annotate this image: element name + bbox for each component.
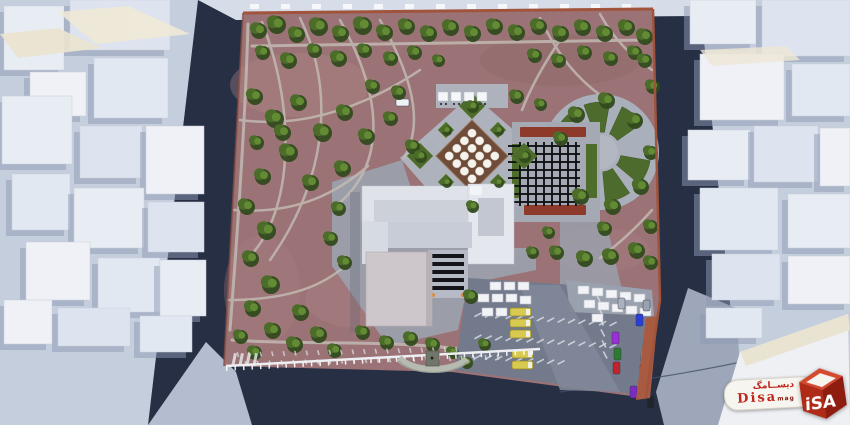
- bus-windshield: [528, 362, 532, 368]
- building-north-bar-ledge: [374, 200, 468, 222]
- umbrella: [468, 175, 476, 183]
- stall-canopy: [592, 288, 603, 296]
- road-dash: [529, 4, 538, 9]
- building-mid-bar: [386, 222, 472, 248]
- flowerbed-south: [524, 205, 586, 215]
- umbrella: [475, 152, 483, 160]
- rooftop-unit: [470, 186, 482, 195]
- building-block: [754, 126, 818, 182]
- stall-canopy: [598, 302, 609, 310]
- building-block: [820, 128, 850, 186]
- bus-windshield: [528, 351, 532, 357]
- stall-canopy: [504, 282, 515, 290]
- building-block: [26, 242, 90, 300]
- car: [630, 386, 637, 398]
- umbrella: [483, 144, 491, 152]
- umbrella: [453, 144, 461, 152]
- bus-windshield: [526, 309, 530, 315]
- car: [614, 348, 621, 360]
- umbrella: [445, 152, 453, 160]
- annex-hall: [366, 252, 432, 326]
- road-dash: [436, 4, 445, 9]
- stall-canopy: [478, 294, 489, 302]
- entrance-stall: [438, 92, 448, 101]
- watermark-brand-suffix: mag: [778, 396, 796, 404]
- umbrella: [475, 137, 483, 145]
- stall-canopy: [520, 296, 531, 304]
- stall-canopy: [496, 308, 507, 316]
- building-block: [700, 188, 778, 250]
- building-courtyard: [478, 198, 504, 236]
- stall-canopy: [584, 300, 595, 308]
- building-block: [140, 316, 192, 352]
- stall-post: [440, 103, 442, 105]
- road-dash: [374, 4, 383, 9]
- car: [636, 314, 643, 326]
- car: [613, 362, 620, 374]
- building-block: [98, 258, 160, 312]
- building-block: [712, 254, 780, 300]
- stall-canopy: [626, 306, 637, 314]
- umbrella: [460, 137, 468, 145]
- stall-canopy: [578, 286, 589, 294]
- building-block: [146, 126, 204, 194]
- umbrella: [460, 152, 468, 160]
- stall-canopy: [518, 282, 529, 290]
- building-block: [80, 126, 142, 178]
- road-dash: [281, 4, 290, 9]
- building-block: [788, 256, 850, 304]
- road-dash: [560, 4, 569, 9]
- car: [618, 298, 625, 309]
- aerial-render-scene: دیســامگ Disamag iSA: [0, 0, 850, 425]
- road-dash: [312, 4, 321, 9]
- building-block: [688, 130, 750, 180]
- entrance-stall: [464, 92, 474, 101]
- car: [612, 332, 619, 344]
- scene-svg: [0, 0, 850, 425]
- building-block: [792, 64, 850, 116]
- road-dash: [467, 4, 476, 9]
- stall-canopy: [506, 294, 517, 302]
- road-dash: [498, 4, 507, 9]
- umbrella: [468, 159, 476, 167]
- car: [396, 99, 409, 106]
- road-dash: [405, 4, 414, 9]
- stall-canopy: [492, 294, 503, 302]
- building-block: [12, 174, 70, 230]
- hedge-east: [586, 144, 597, 198]
- building-block: [74, 188, 144, 248]
- road-dash: [343, 4, 352, 9]
- building-block: [160, 260, 206, 316]
- stall-canopy: [592, 314, 603, 322]
- umbrella: [460, 167, 468, 175]
- watermark-brand: Disa: [737, 391, 778, 408]
- car: [643, 300, 650, 311]
- stall-canopy: [490, 282, 501, 290]
- watermark-latin-text: Disamag: [737, 391, 795, 408]
- gate-detail: [431, 357, 434, 360]
- umbrella: [475, 167, 483, 175]
- building-block: [148, 202, 204, 252]
- park: [224, 9, 660, 408]
- bus-windshield: [526, 331, 530, 337]
- umbrella: [453, 159, 461, 167]
- stall-post: [479, 103, 481, 105]
- building-block: [58, 308, 130, 346]
- watermark: دیســامگ Disamag iSA: [724, 367, 848, 421]
- stall-canopy: [606, 290, 617, 298]
- entrance-stall: [451, 92, 461, 101]
- umbrella: [468, 129, 476, 137]
- umbrella: [468, 144, 476, 152]
- umbrella: [483, 159, 491, 167]
- building-block: [690, 0, 756, 44]
- building-block: [4, 300, 52, 344]
- stall-post: [484, 103, 486, 105]
- entrance-stall: [477, 92, 487, 101]
- building-block: [788, 194, 850, 248]
- annex-edge-shade: [426, 252, 432, 326]
- stall-canopy: [482, 308, 493, 316]
- umbrella: [491, 152, 499, 160]
- stall-post: [445, 103, 447, 105]
- building-block: [706, 308, 762, 338]
- building-block: [94, 58, 168, 118]
- stall-post: [458, 103, 460, 105]
- bus-windshield: [526, 320, 530, 326]
- stall-post: [453, 103, 455, 105]
- disamag-logo-icon: iSA: [794, 364, 850, 424]
- road-dash: [250, 4, 259, 9]
- building-block: [2, 96, 72, 164]
